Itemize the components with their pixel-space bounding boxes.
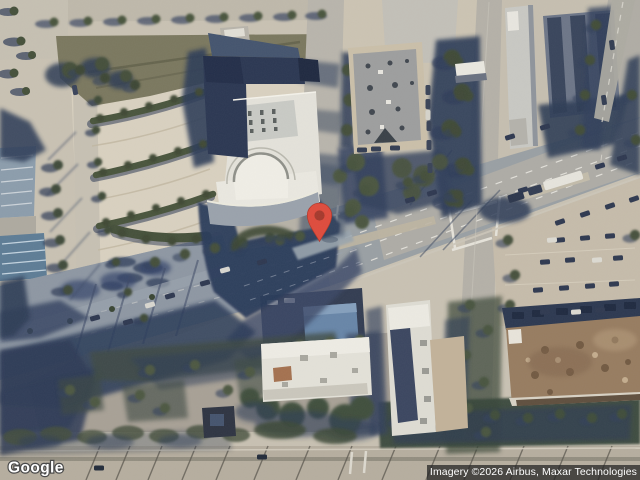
svg-text:Google: Google [8,460,64,477]
